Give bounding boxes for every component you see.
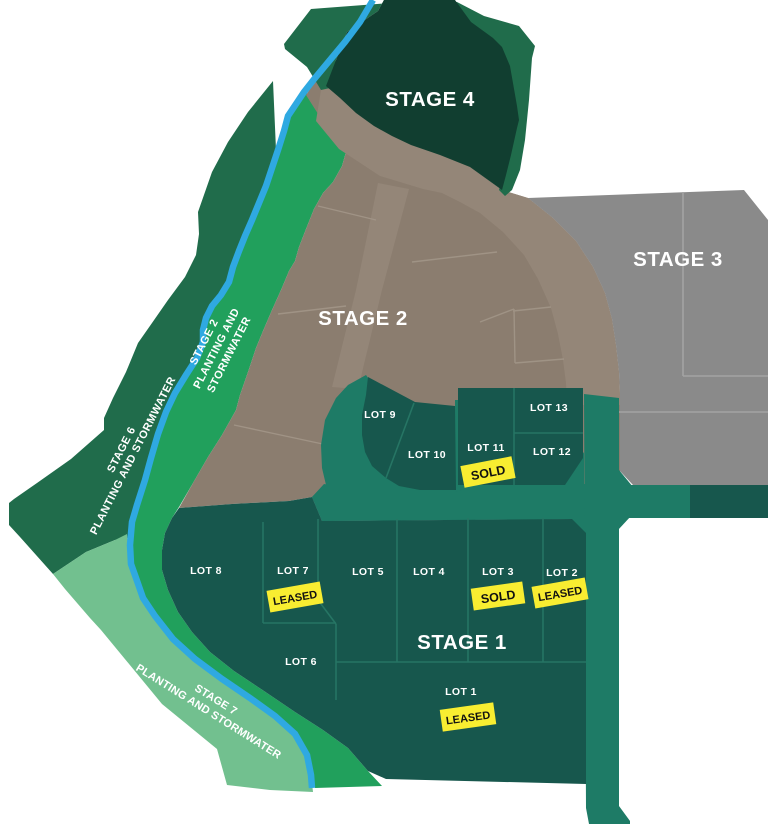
- svg-text:LOT 6: LOT 6: [285, 656, 317, 668]
- svg-text:LOT 13: LOT 13: [530, 402, 568, 414]
- svg-text:LOT 5: LOT 5: [352, 566, 384, 578]
- svg-text:STAGE 3: STAGE 3: [633, 248, 723, 271]
- svg-text:LOT 11: LOT 11: [467, 442, 504, 454]
- svg-text:LOT 8: LOT 8: [190, 565, 222, 577]
- svg-text:LOT 7: LOT 7: [277, 565, 309, 577]
- svg-text:LOT 2: LOT 2: [546, 567, 578, 579]
- svg-text:LOT 1: LOT 1: [445, 686, 477, 698]
- svg-text:STAGE 1: STAGE 1: [417, 631, 507, 654]
- svg-text:STAGE 4: STAGE 4: [385, 88, 475, 111]
- svg-text:STAGE 2: STAGE 2: [318, 307, 408, 330]
- svg-text:LOT 10: LOT 10: [408, 449, 446, 461]
- svg-text:LOT 9: LOT 9: [364, 409, 396, 421]
- svg-text:LOT 4: LOT 4: [413, 566, 445, 578]
- svg-text:LOT 3: LOT 3: [482, 566, 514, 578]
- svg-text:LOT 12: LOT 12: [533, 446, 571, 458]
